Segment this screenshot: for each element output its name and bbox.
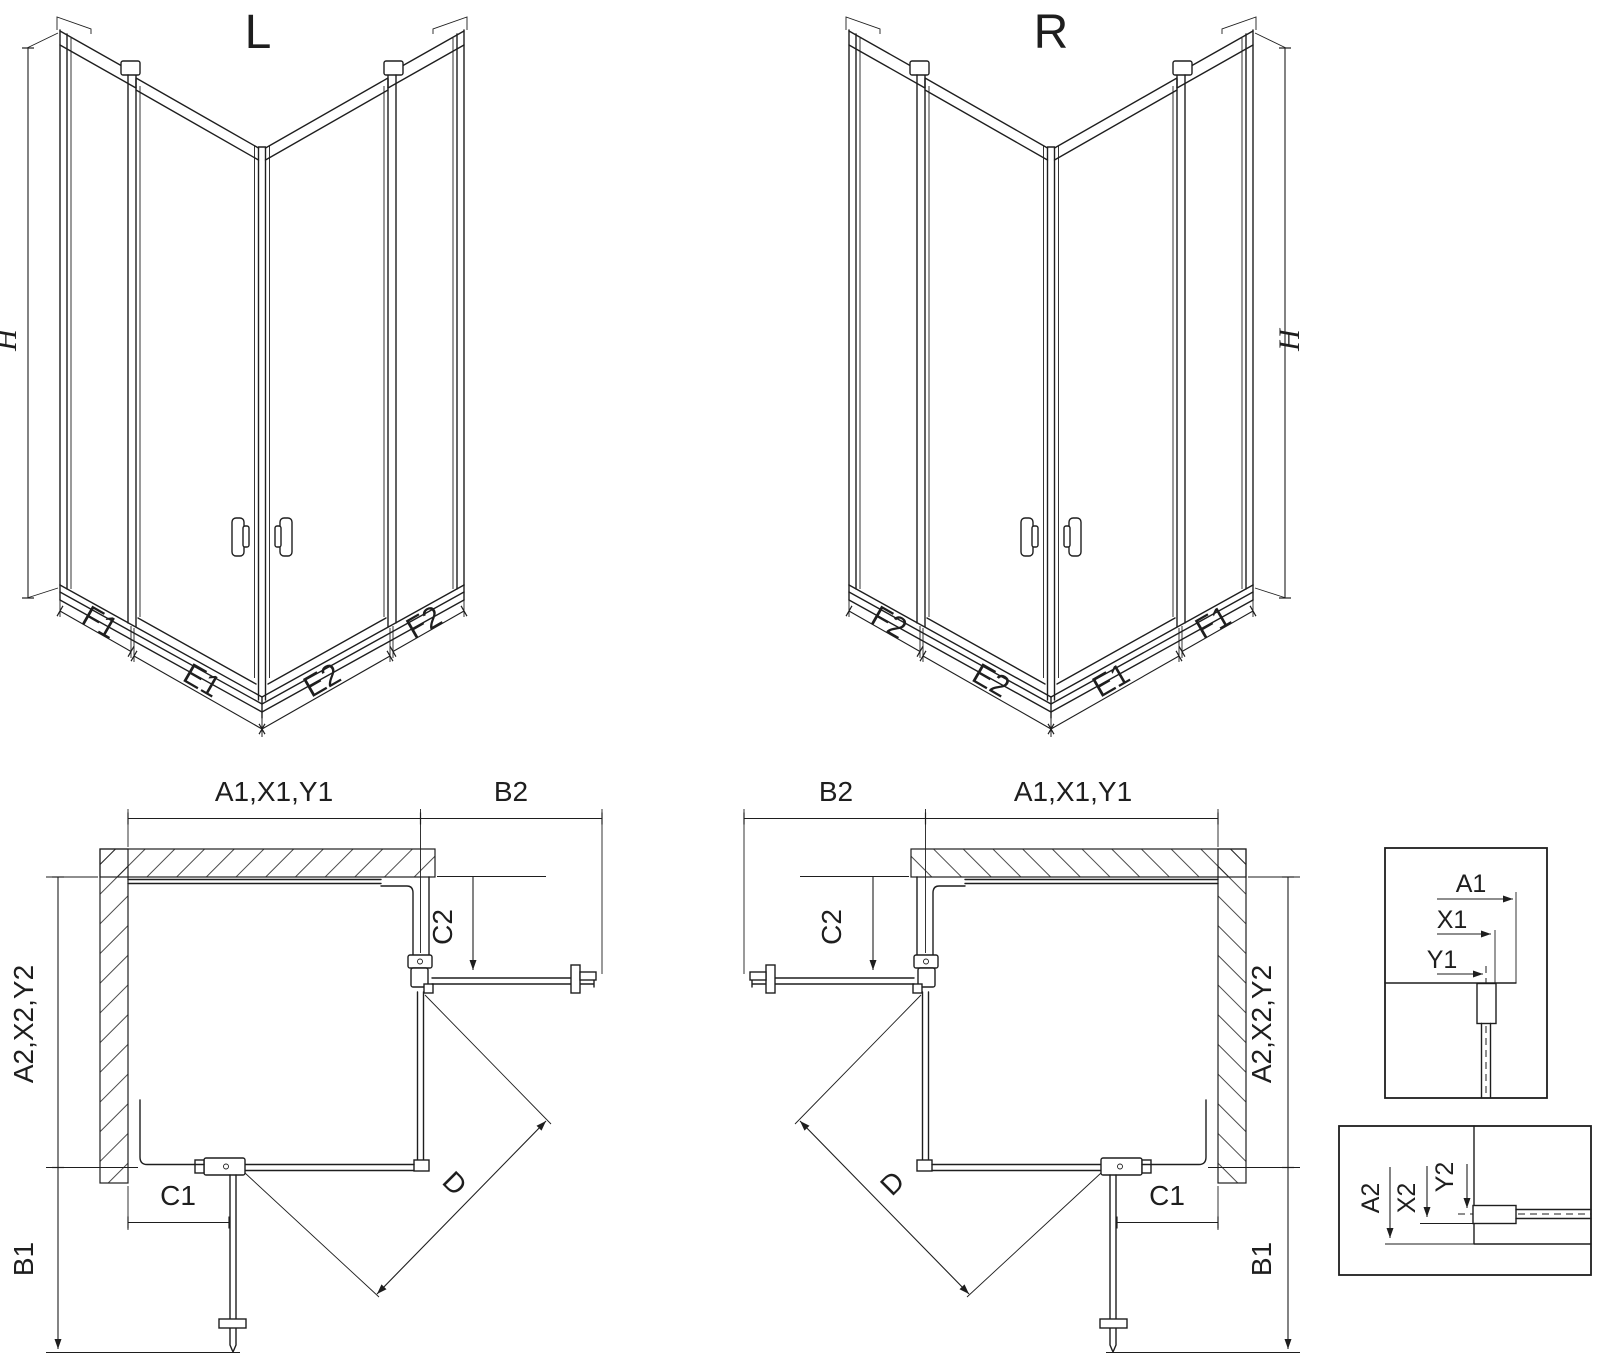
dim-label-f1-left: F1 [76,600,123,646]
plan-left-label-b1: B1 [8,1242,39,1276]
dim-label-f1-right: F1 [1190,600,1237,646]
plan-view-right: B2 A1,X1,Y1 C2 A2,X2,Y2 C1 B1 D [744,776,1300,1353]
plan-left-label-d: D [437,1165,473,1201]
plan-right-label-b2: B2 [819,776,853,807]
plan-right-label-depth: A2,X2,Y2 [1246,965,1277,1083]
plan-left-label-c2: C2 [427,909,458,945]
dim-label-e2-left: E2 [298,657,346,704]
detail-width-label-a1: A1 [1456,870,1487,898]
plan-left-label-c1: C1 [160,1180,196,1211]
dim-label-height-left: H [0,327,23,352]
detail-width-label-y1: Y1 [1427,946,1458,974]
view-title-right: R [1034,6,1069,59]
dim-label-f2-left: F2 [401,600,448,646]
iso-view-right: R H F2 E2 E1 F1 [846,6,1306,737]
detail-depth-label-y2: Y2 [1431,1162,1459,1193]
detail-depth-label-a2: A2 [1357,1183,1385,1214]
view-title-left: L [245,6,272,59]
detail-depth-label-x2: X2 [1393,1183,1421,1214]
plan-left-label-width: A1,X1,Y1 [215,776,333,807]
plan-right-label-c2: C2 [816,909,847,945]
plan-right-label-c1: C1 [1149,1180,1185,1211]
detail-box-width: A1 X1 Y1 [1385,848,1547,1098]
detail-box-depth: A2 X2 Y2 [1339,1126,1591,1275]
dim-label-f2-right: F2 [865,600,912,646]
dim-label-e2-right: E2 [967,657,1015,704]
iso-view-left: L H F1 E1 E2 F2 [0,6,467,737]
plan-left-label-depth: A2,X2,Y2 [8,965,39,1083]
dim-label-e1-left: E1 [178,657,226,704]
plan-right-label-d: D [874,1165,910,1201]
plan-view-left: A1,X1,Y1 B2 C2 A2,X2,Y2 C1 B1 D [8,776,602,1353]
dim-label-height-right: H [1273,327,1306,352]
plan-right-label-width: A1,X1,Y1 [1014,776,1132,807]
technical-drawing: L H F1 E1 E2 F2 R H F2 E2 E1 F1 A1,X1,Y1… [0,0,1600,1358]
detail-width-label-x1: X1 [1437,906,1468,934]
plan-right-label-b1: B1 [1246,1242,1277,1276]
drawing-page: L H F1 E1 E2 F2 R H F2 E2 E1 F1 A1,X1,Y1… [0,0,1600,1358]
plan-left-label-b2: B2 [494,776,528,807]
dim-label-e1-right: E1 [1087,657,1135,704]
